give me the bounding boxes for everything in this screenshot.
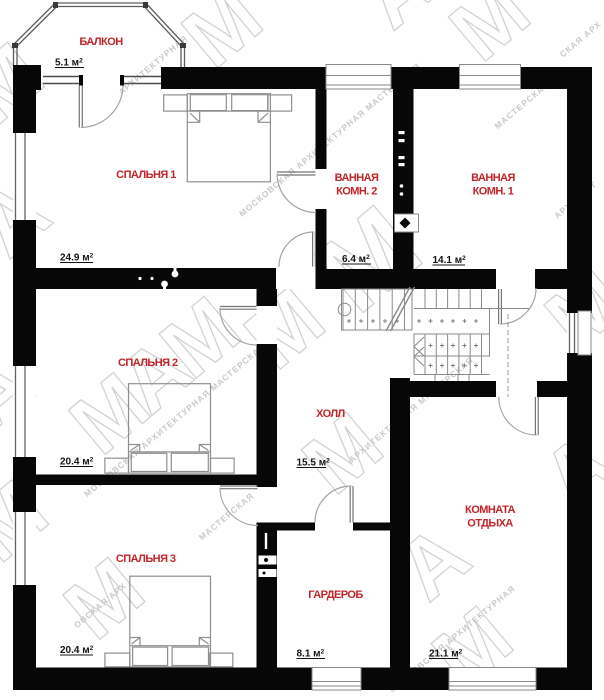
svg-text:СПАЛЬНЯ 1: СПАЛЬНЯ 1 [116, 169, 176, 181]
svg-text:21.1 м2: 21.1 м2 [429, 649, 463, 660]
svg-text:КОМНАТА: КОМНАТА [465, 504, 515, 516]
svg-text:КОМН. 1: КОМН. 1 [473, 186, 514, 198]
svg-text:ВАННАЯ: ВАННАЯ [471, 172, 515, 184]
svg-text:СПАЛЬНЯ 2: СПАЛЬНЯ 2 [118, 357, 178, 369]
svg-text:СПАЛЬНЯ 3: СПАЛЬНЯ 3 [116, 553, 176, 565]
svg-text:24.9 м2: 24.9 м2 [60, 253, 94, 264]
svg-text:ОТДЫХА: ОТДЫХА [467, 518, 513, 530]
svg-text:БАЛКОН: БАЛКОН [79, 36, 123, 48]
svg-text:20.4 м2: 20.4 м2 [60, 457, 94, 468]
svg-text:20.4 м2: 20.4 м2 [60, 645, 94, 656]
svg-text:КОМН. 2: КОМН. 2 [336, 186, 377, 198]
svg-text:ХОЛЛ: ХОЛЛ [316, 408, 345, 420]
svg-text:ГАРДЕРОБ: ГАРДЕРОБ [308, 589, 363, 601]
svg-text:5.1 м2: 5.1 м2 [55, 58, 83, 69]
svg-text:6.4 м2: 6.4 м2 [342, 254, 370, 265]
svg-text:14.1 м2: 14.1 м2 [433, 255, 467, 266]
svg-text:15.5 м2: 15.5 м2 [297, 458, 331, 469]
svg-text:8.1 м2: 8.1 м2 [297, 649, 325, 660]
svg-text:ВАННАЯ: ВАННАЯ [335, 172, 379, 184]
